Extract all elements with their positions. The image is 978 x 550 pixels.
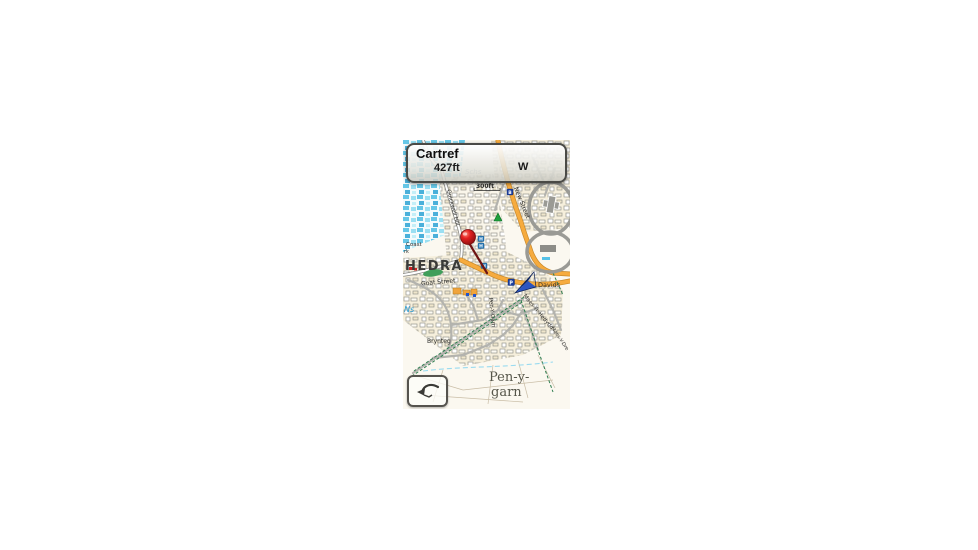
estate-label: Brynteg — [427, 338, 451, 345]
water-label-fragment: Ns — [404, 305, 414, 314]
location-name: Cartref — [416, 146, 459, 161]
back-button[interactable] — [407, 375, 448, 407]
coast-fragment-label: rk — [404, 249, 409, 255]
back-arrow-icon — [415, 382, 441, 400]
city-label: HEDRA — [405, 259, 463, 274]
gps-map-screen[interactable]: H H H B P HEDRA Coast rk Goat — [403, 140, 570, 409]
davids-label: Davids — [538, 281, 561, 289]
coast-label: Coast — [406, 242, 422, 248]
location-info-banner[interactable]: Cartref 427ft W — [406, 143, 567, 183]
parking-icon: P — [508, 279, 515, 286]
svg-text:B: B — [508, 190, 512, 196]
settlement-label-line1: Pen-y- — [489, 370, 529, 385]
svg-text:P: P — [509, 280, 513, 286]
hotel-icon: H — [478, 243, 484, 250]
scale-label: 300ft — [476, 183, 494, 190]
location-elevation: 427ft — [434, 162, 460, 174]
svg-text:H: H — [479, 237, 483, 243]
settlement-label-line2: garn — [491, 385, 522, 400]
svg-text:H: H — [479, 244, 483, 250]
lodging-icon: B — [507, 189, 513, 196]
location-direction: W — [518, 161, 528, 173]
hotel-icon: H — [478, 236, 484, 243]
